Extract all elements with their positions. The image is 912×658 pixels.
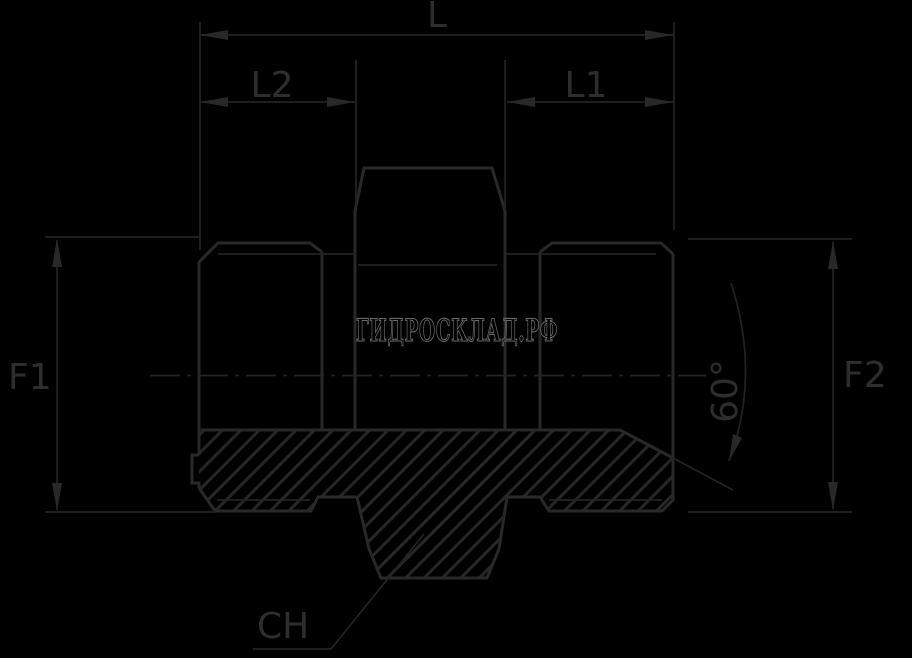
watermark-text: ГИДРОСКЛАД.РФ: [356, 313, 558, 349]
arrowhead-bottom: [828, 482, 838, 510]
arrowhead-left: [200, 97, 228, 107]
section-hatch: [199, 430, 673, 578]
label-F1: F1: [8, 357, 52, 398]
hex-top-face: [355, 168, 505, 211]
fitting-technical-drawing: L L2 L1 F1 F2 60°: [0, 0, 912, 658]
label-F2: F2: [843, 355, 887, 396]
dimension-L: L: [200, 0, 674, 250]
dimension-L2: L2: [200, 60, 356, 211]
arrowhead-arc: [729, 434, 742, 461]
label-L: L: [427, 0, 447, 36]
right-thread-top-outline: [540, 243, 673, 254]
drawing-stage: L L2 L1 F1 F2 60°: [0, 0, 912, 658]
left-end-notch: [192, 455, 199, 488]
left-thread-top-outline: [199, 243, 322, 262]
arrowhead-top: [52, 239, 62, 267]
arrowhead-left: [507, 97, 535, 107]
label-60deg: 60°: [705, 359, 746, 423]
dimension-F1: F1: [8, 237, 215, 512]
label-L2: L2: [251, 65, 294, 106]
arrowhead-right: [645, 97, 673, 107]
arrowhead-right: [645, 30, 673, 40]
arrowhead-right: [327, 97, 355, 107]
arrowhead-left: [200, 30, 228, 40]
cone-extension-line: [673, 458, 733, 490]
arrowhead-bottom: [52, 483, 62, 511]
label-CH: CH: [257, 606, 309, 647]
dimension-L1: L1: [505, 60, 673, 211]
label-L1: L1: [565, 65, 608, 106]
dimension-cone-angle: 60°: [673, 283, 746, 490]
arrowhead-top: [828, 241, 838, 269]
hatched-section-region: [199, 430, 673, 578]
